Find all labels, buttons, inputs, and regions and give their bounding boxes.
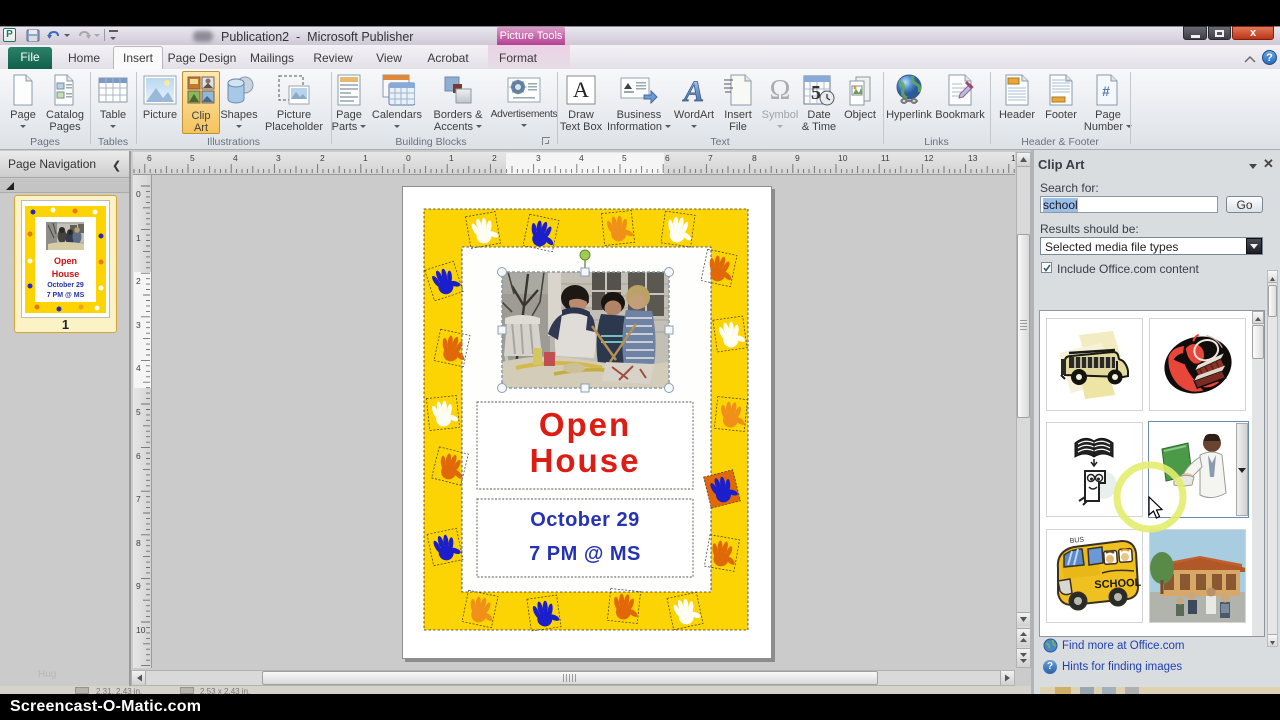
svg-text:12: 12 <box>924 153 934 163</box>
svg-text:7 PM @ MS: 7 PM @ MS <box>529 543 641 565</box>
svg-text:1: 1 <box>363 153 368 163</box>
svg-text:0: 0 <box>406 153 411 163</box>
svg-text:10: 10 <box>838 153 848 163</box>
svg-text:10: 10 <box>136 625 146 635</box>
svg-text:5: 5 <box>136 407 141 417</box>
svg-text:#: # <box>1102 83 1110 99</box>
svg-text:Ω: Ω <box>770 75 791 105</box>
svg-text:2: 2 <box>492 153 497 163</box>
svg-text:8: 8 <box>752 153 757 163</box>
svg-text:A: A <box>573 77 589 102</box>
svg-text:1: 1 <box>136 233 141 243</box>
svg-text:4: 4 <box>233 153 238 163</box>
svg-text:0: 0 <box>136 189 141 199</box>
svg-text:7: 7 <box>136 494 141 504</box>
svg-text:2: 2 <box>320 153 325 163</box>
svg-text:5: 5 <box>190 153 195 163</box>
svg-text:6: 6 <box>665 153 670 163</box>
svg-text:6: 6 <box>147 153 152 163</box>
svg-text:5: 5 <box>622 153 627 163</box>
svg-text:BUS: BUS <box>1069 536 1084 545</box>
svg-text:3: 3 <box>276 153 281 163</box>
svg-text:Open: Open <box>539 406 631 443</box>
svg-text:9: 9 <box>136 581 141 591</box>
svg-text:13: 13 <box>968 153 978 163</box>
svg-text:14: 14 <box>1011 153 1015 163</box>
svg-text:8: 8 <box>136 538 141 548</box>
svg-text:7: 7 <box>708 153 713 163</box>
svg-text:4: 4 <box>136 363 141 373</box>
svg-text:5: 5 <box>811 82 821 104</box>
svg-text:3: 3 <box>536 153 541 163</box>
svg-text:1: 1 <box>449 153 454 163</box>
svg-text:October 29: October 29 <box>530 509 639 531</box>
svg-text:A: A <box>682 75 704 105</box>
svg-text:6: 6 <box>136 451 141 461</box>
svg-text:9: 9 <box>795 153 800 163</box>
svg-text:4: 4 <box>579 153 584 163</box>
svg-text:2: 2 <box>136 276 141 286</box>
svg-text:11: 11 <box>881 153 890 163</box>
svg-text:3: 3 <box>136 320 141 330</box>
svg-text:House: House <box>530 442 641 479</box>
